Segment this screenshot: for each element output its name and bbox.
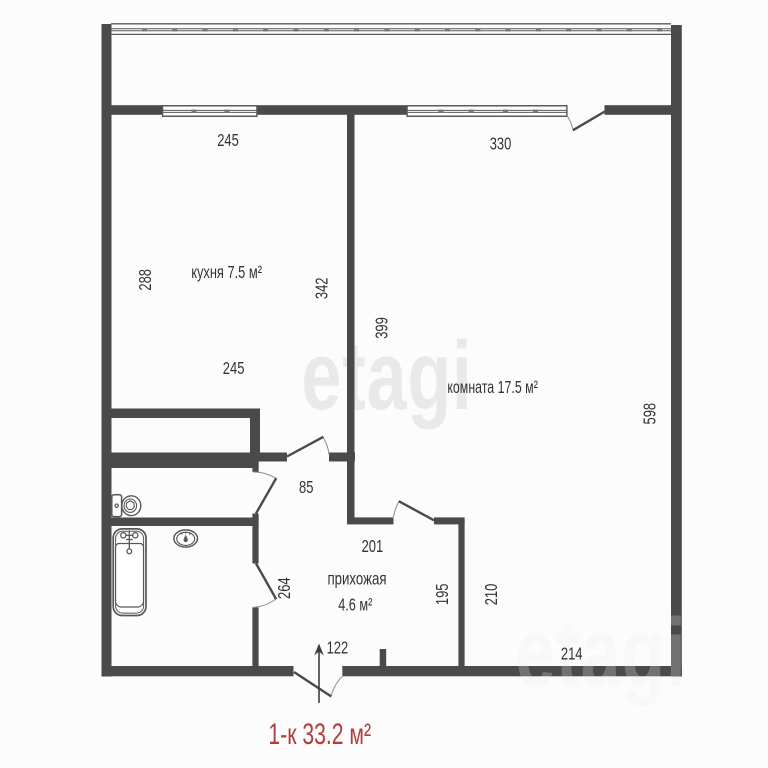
svg-text:4.6 м²: 4.6 м² bbox=[338, 595, 372, 614]
svg-text:598: 598 bbox=[640, 403, 660, 425]
svg-text:201: 201 bbox=[362, 537, 384, 557]
svg-text:195: 195 bbox=[433, 583, 453, 605]
svg-text:85: 85 bbox=[299, 478, 314, 498]
svg-text:330: 330 bbox=[490, 135, 512, 155]
svg-text:245: 245 bbox=[217, 131, 239, 151]
svg-text:прихожая: прихожая bbox=[327, 570, 386, 589]
svg-text:122: 122 bbox=[327, 639, 349, 659]
svg-text:кухня 7.5 м²: кухня 7.5 м² bbox=[191, 263, 262, 282]
svg-text:etagi: etagi bbox=[515, 600, 686, 708]
svg-text:288: 288 bbox=[136, 269, 156, 291]
svg-text:342: 342 bbox=[313, 277, 333, 299]
svg-text:245: 245 bbox=[223, 359, 245, 379]
svg-text:комната 17.5 м²: комната 17.5 м² bbox=[447, 378, 537, 398]
svg-text:214: 214 bbox=[561, 645, 583, 665]
svg-text:210: 210 bbox=[482, 583, 502, 605]
svg-text:264: 264 bbox=[275, 577, 295, 599]
svg-text:399: 399 bbox=[373, 317, 393, 339]
svg-text:1-к 33.2 м²: 1-к 33.2 м² bbox=[268, 719, 371, 751]
